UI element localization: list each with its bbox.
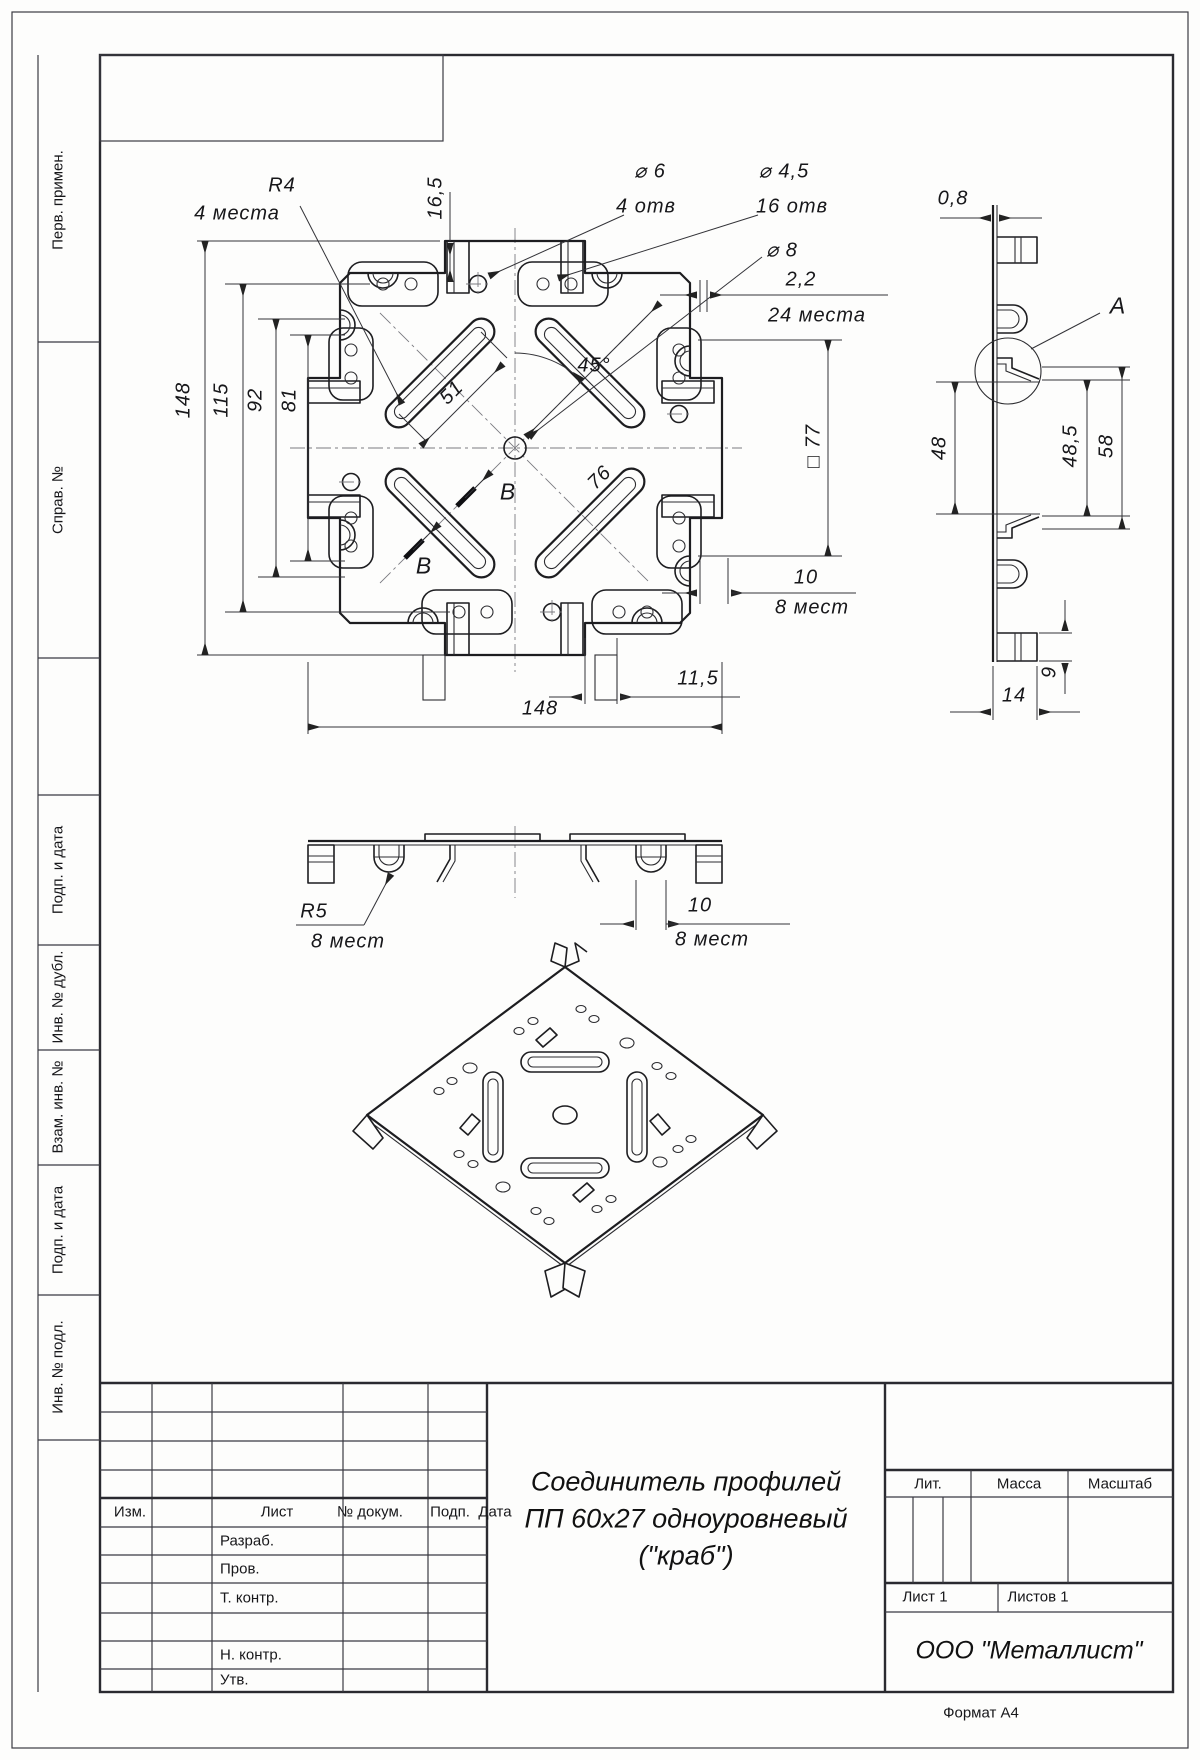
dim-9: 9 (1039, 666, 1062, 678)
dim-10-top-note: 8 мест (775, 597, 849, 620)
dim-dia4-5-note: 16 отв (756, 196, 828, 219)
side-view (936, 205, 1130, 720)
tb-row-nkontr: Н. контр. (220, 1647, 282, 1664)
doc-title-line3: ("краб") (638, 1541, 733, 1572)
dim-16-5: 16,5 (425, 177, 448, 220)
dim-r5: R5 (300, 901, 328, 924)
strip-podp-data-1: Подп. и дата (50, 826, 67, 914)
dim-r4: R4 (268, 175, 296, 198)
dim-square-77: □ 77 (803, 424, 826, 468)
dim-10-front-note: 8 мест (675, 929, 749, 952)
dim-14: 14 (1002, 685, 1026, 708)
strip-inv-dubl: Инв. № дубл. (50, 951, 67, 1044)
isometric-view (353, 943, 777, 1297)
dim-148-left: 148 (173, 382, 196, 418)
tb-row-utv: Утв. (220, 1672, 249, 1689)
dim-58: 58 (1096, 434, 1119, 458)
dim-10-top: 10 (794, 567, 818, 590)
dim-48: 48 (929, 436, 952, 460)
dim-81: 81 (279, 388, 302, 412)
dim-dia6: ⌀ 6 (634, 159, 666, 184)
strip-vzam-inv: Взам. инв. № (50, 1061, 67, 1154)
doc-title-line1: Соединитель профилей (531, 1467, 841, 1498)
strip-podp-data-2: Подп. и дата (50, 1186, 67, 1274)
dim-r5-note: 8 мест (311, 931, 385, 954)
section-label-b2: В (416, 553, 432, 580)
tb-col-list: Лист (261, 1504, 294, 1521)
drawing-sheet: R4 4 места 16,5 ⌀ 6 4 отв ⌀ 4,5 16 отв ⌀… (0, 0, 1200, 1760)
top-view (290, 228, 742, 700)
dim-r4-note: 4 места (194, 203, 280, 226)
strip-inv-podl: Инв. № подл. (50, 1320, 67, 1413)
tb-massa: Масса (997, 1476, 1041, 1493)
tb-masshtab: Масштаб (1088, 1476, 1152, 1493)
section-label-b1: В (500, 479, 516, 506)
dim-11-5: 11,5 (677, 668, 718, 691)
dim-dia4-5: ⌀ 4,5 (759, 159, 809, 184)
dim-2-2: 2,2 (786, 269, 817, 292)
strip-sprav-no: Справ. № (50, 466, 67, 534)
tb-listov-1: Листов 1 (1007, 1589, 1068, 1606)
tb-list-1: Лист 1 (902, 1589, 947, 1606)
dim-24-places: 24 места (768, 305, 866, 328)
dim-45deg: 45° (577, 355, 610, 378)
tb-row-prov: Пров. (220, 1561, 260, 1578)
tb-col-podp: Подп. (430, 1504, 470, 1521)
format-note: Формат А4 (943, 1705, 1019, 1722)
tb-company: ООО "Металлист" (915, 1637, 1142, 1666)
dim-115: 115 (211, 383, 234, 418)
front-view (296, 826, 790, 930)
dim-dia8: ⌀ 8 (766, 238, 798, 263)
dim-92: 92 (245, 388, 268, 412)
tb-col-dokum: № докум. (337, 1504, 403, 1521)
detail-label-a: А (1110, 293, 1126, 320)
dim-148-bottom: 148 (522, 698, 558, 721)
doc-title-line2: ПП 60х27 одноуровневый (524, 1504, 847, 1535)
dim-48-5: 48,5 (1060, 425, 1083, 468)
dim-0-8: 0,8 (938, 188, 969, 211)
top-view-dimensions (197, 192, 888, 734)
tb-lit: Лит. (914, 1476, 942, 1493)
strip-perv-primen: Перв. примен. (50, 150, 67, 250)
tb-row-tkontr: Т. контр. (220, 1590, 279, 1607)
tb-col-izm: Изм. (114, 1504, 146, 1521)
dim-dia6-note: 4 отв (616, 196, 676, 219)
dim-10-front: 10 (688, 895, 712, 918)
tb-col-data: Дата (478, 1504, 511, 1521)
tb-row-razrab: Разраб. (220, 1533, 274, 1550)
